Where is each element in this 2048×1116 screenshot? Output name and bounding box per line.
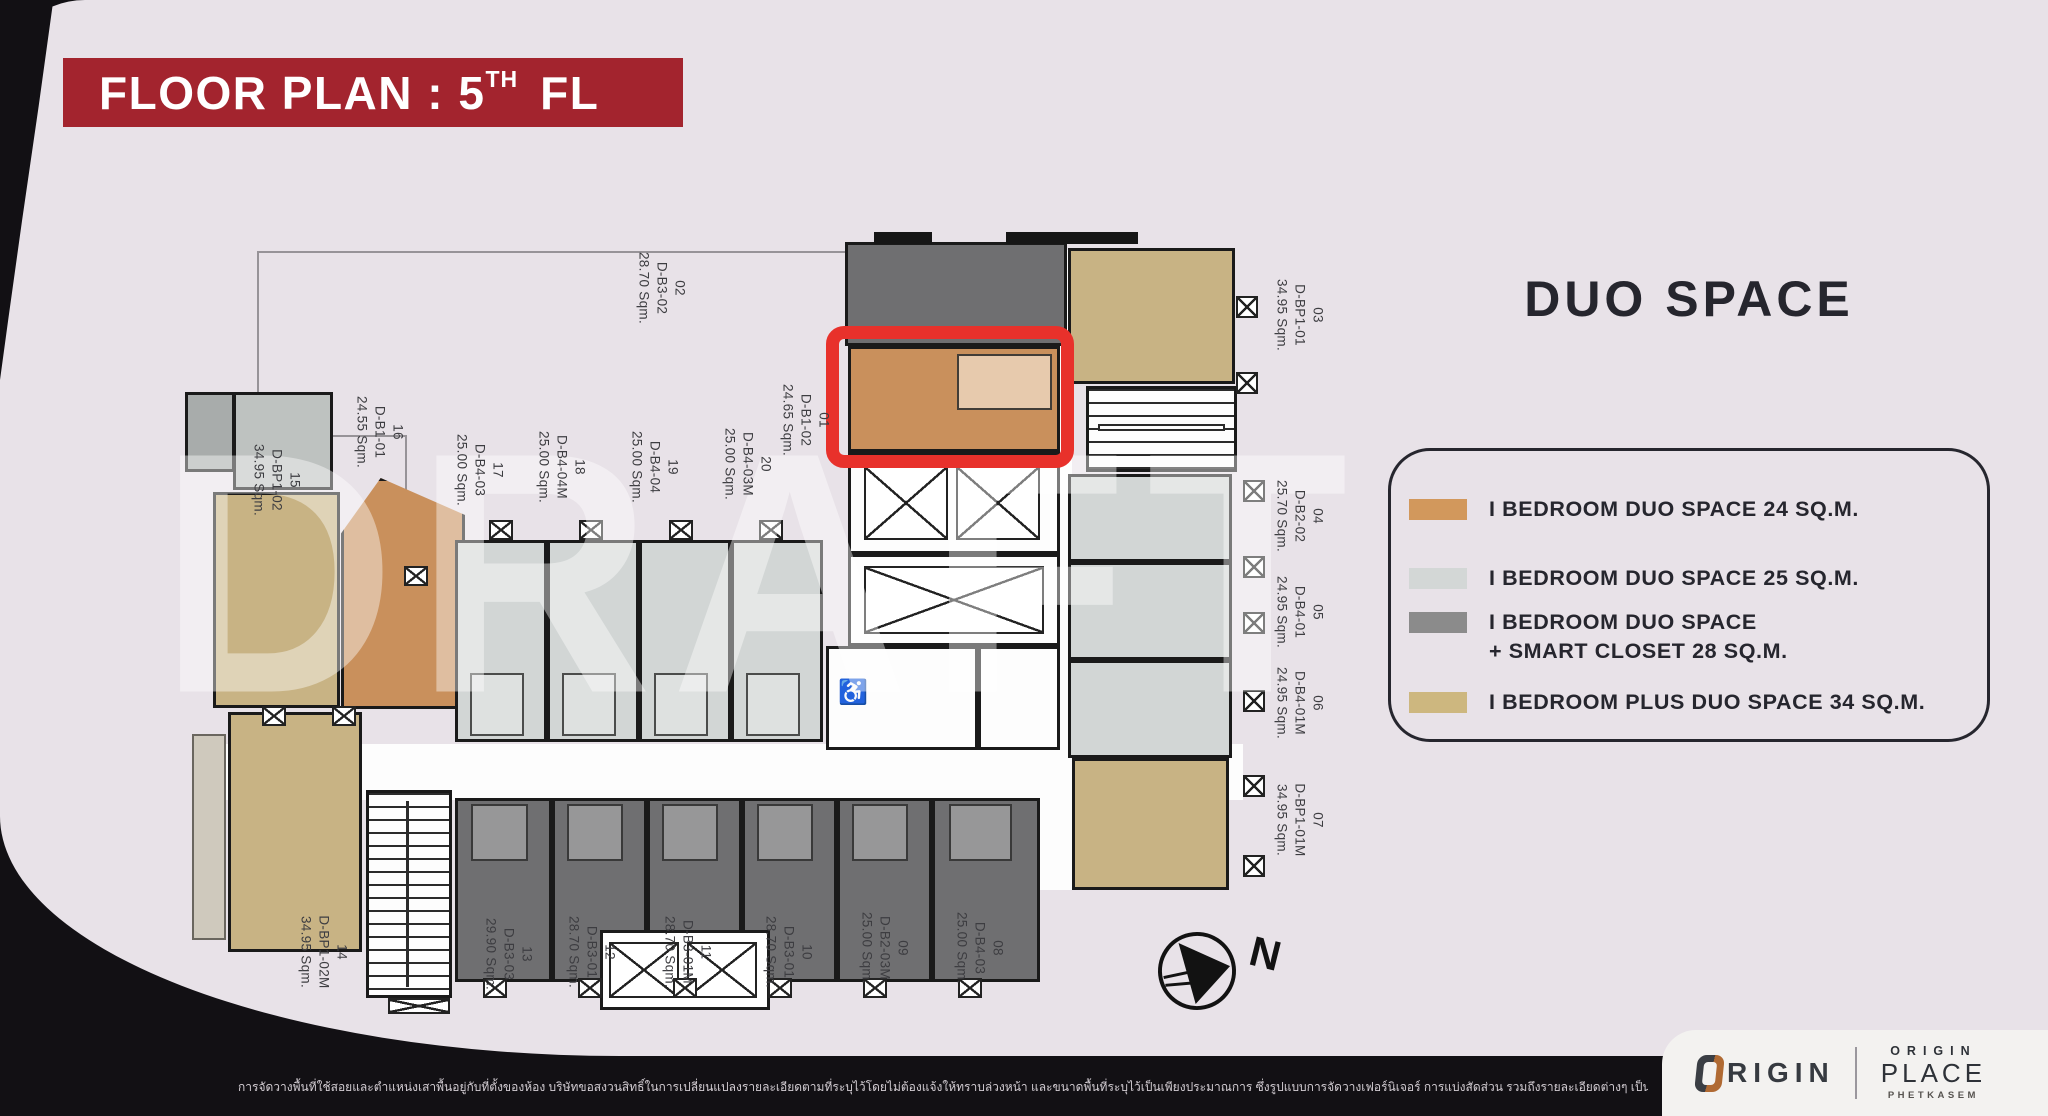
unit-label-13: 13D-B3-0329.90 Sqm. [482, 874, 535, 1034]
legend-label: I BEDROOM DUO SPACE 25 SQ.M. [1489, 564, 1859, 593]
north-arrow: N [1150, 922, 1300, 1022]
north-label: N [1245, 927, 1286, 981]
stairwell-east [1086, 386, 1237, 472]
origin-o-icon [1694, 1055, 1725, 1092]
unit-04-footprint [1068, 474, 1232, 562]
unit-label-03: 03D-BP1-0134.95 Sqm. [1273, 235, 1326, 395]
unit-label-09: 09D-B2-03M25.00 Sqm. [858, 868, 911, 1028]
shaft-marker-icon [332, 706, 356, 726]
unit-18-footprint [547, 540, 639, 742]
unit-06-footprint [1068, 660, 1232, 758]
wall-segment [1006, 232, 1138, 244]
unit-03-footprint [1068, 248, 1235, 384]
shaft-marker-icon [1243, 855, 1265, 877]
poster-sheet: FLOOR PLAN : 5THFL ♿ DRAFT 01D-B1-0224.6… [0, 0, 2048, 1056]
place-logo-top: ORIGIN [1890, 1044, 1976, 1058]
shaft-marker-icon [262, 706, 286, 726]
unit-label-15: 15D-BP1-0234.95 Sqm. [250, 400, 303, 560]
legend-row: I BEDROOM DUO SPACE 24 SQ.M. [1409, 495, 1859, 524]
unit-label-11: 11D-B3-01M28.70 Sqm. [661, 872, 714, 1032]
legend-swatch [1409, 692, 1467, 713]
legend-row: I BEDROOM DUO SPACE 25 SQ.M. [1409, 564, 1859, 593]
shaft-marker-icon [864, 566, 1044, 634]
unit-label-14: 14D-BP1-02M34.95 Sqm. [297, 872, 350, 1032]
unit-label-12: 12D-B3-0128.70 Sqm. [565, 872, 618, 1032]
legend-row: I BEDROOM DUO SPACE+ SMART CLOSET 28 SQ.… [1409, 608, 1788, 666]
origin-place-logo: ORIGIN PLACE PHETKASEM [1881, 1044, 1986, 1101]
compass-circle-icon [1151, 925, 1244, 1018]
unit-label-16: 16D-B1-0124.55 Sqm. [353, 352, 406, 512]
legend-swatch [1409, 499, 1467, 520]
legend-row: I BEDROOM PLUS DUO SPACE 34 SQ.M. [1409, 688, 1925, 717]
shaft-marker-icon [1243, 690, 1265, 712]
shaft-marker-icon [1243, 612, 1265, 634]
unit-label-01: 01D-B1-0224.65 Sqm. [779, 340, 832, 500]
unit-14-balcony [192, 734, 226, 940]
unit-label-02: 02D-B3-0228.70 Sqm. [635, 208, 688, 368]
accessible-wc-icon: ♿ [838, 678, 868, 707]
legend-label: I BEDROOM PLUS DUO SPACE 34 SQ.M. [1489, 688, 1925, 717]
unit-07-footprint [1072, 758, 1229, 890]
legend-box: I BEDROOM DUO SPACE 24 SQ.M. I BEDROOM D… [1388, 448, 1990, 742]
unit-label-17: 17D-B4-0325.00 Sqm. [453, 390, 506, 550]
shaft-marker-icon [1236, 372, 1258, 394]
unit-label-20: 20D-B4-03M25.00 Sqm. [721, 384, 774, 544]
unit-label-18: 18D-B4-04M25.00 Sqm. [535, 387, 588, 547]
stairwell-west [366, 790, 452, 998]
compass-needle-icon [1157, 931, 1238, 1012]
shaft-marker-icon [1236, 296, 1258, 318]
legend-label: I BEDROOM DUO SPACE 24 SQ.M. [1489, 495, 1859, 524]
utility-room-a [185, 392, 235, 472]
wall-segment [874, 232, 932, 244]
floor-plan-poster: FLOOR PLAN : 5THFL ♿ DRAFT 01D-B1-0224.6… [0, 0, 2048, 1116]
disclaimer-text: การจัดวางพื้นที่ใช้สอยและตำแหน่งเสาพื้นอ… [238, 1078, 1648, 1097]
unit-19-footprint [639, 540, 731, 742]
unit-label-10: 10D-B3-0128.70 Sqm. [762, 872, 815, 1032]
place-logo-sub: PHETKASEM [1888, 1091, 1979, 1102]
unit-label-07: 07D-BP1-01M34.95 Sqm. [1273, 740, 1326, 900]
shaft-marker-icon [956, 466, 1040, 540]
unit-16-footprint [341, 478, 465, 709]
legend-swatch [1409, 612, 1467, 633]
shaft-marker-icon [1243, 775, 1265, 797]
legend-label: I BEDROOM DUO SPACE+ SMART CLOSET 28 SQ.… [1489, 608, 1788, 666]
legend-swatch [1409, 568, 1467, 589]
unit-label-19: 19D-B4-0425.00 Sqm. [628, 387, 681, 547]
brand-panel: RIGIN ORIGIN PLACE PHETKASEM [1662, 1030, 2048, 1116]
unit-17-footprint [455, 540, 547, 742]
shaft-marker-icon [1243, 480, 1265, 502]
shaft-marker-icon [388, 998, 450, 1014]
logo-divider [1855, 1047, 1857, 1099]
origin-wordmark-text: RIGIN [1727, 1057, 1835, 1089]
origin-logo: RIGIN [1696, 1055, 1835, 1092]
legend-title: DUO SPACE [1388, 270, 1990, 328]
highlighted-unit-01-outline [826, 326, 1074, 468]
unit-label-08: 08D-B4-0325.00 Sqm. [953, 868, 1006, 1028]
unit-05-footprint [1068, 562, 1232, 660]
unit-20-footprint [731, 540, 823, 742]
shaft-marker-icon [1243, 556, 1265, 578]
service-room [978, 646, 1060, 750]
shaft-marker-icon [404, 566, 428, 586]
place-logo-main: PLACE [1881, 1059, 1986, 1089]
shaft-marker-icon [864, 466, 948, 540]
